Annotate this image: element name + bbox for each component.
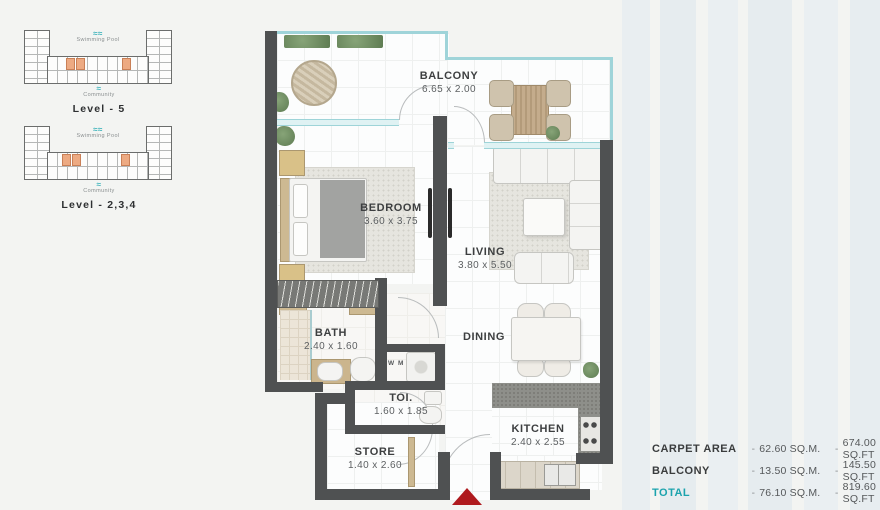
dining-label: DINING: [458, 331, 510, 344]
dining-table: [511, 317, 581, 361]
balcony-chair: [489, 114, 514, 141]
tv-unit: [448, 188, 452, 238]
highlighted-unit: [121, 154, 130, 166]
level-label: Level - 5: [16, 103, 182, 115]
separator: -: [747, 488, 759, 499]
wall-toilet-south: [345, 425, 445, 434]
pool-label: Swimming Pool: [76, 37, 119, 43]
toilet-label: TOI. 1.60 x 1.85: [370, 392, 432, 417]
kitchen-label: KITCHEN 2.40 x 2.55: [507, 423, 569, 448]
dining-name: DINING: [458, 331, 510, 344]
balcony-area-sqft: 145.50 SQ.FT: [843, 459, 876, 483]
balcony-plant: [546, 126, 560, 140]
wall-store-west: [315, 393, 327, 500]
separator: -: [747, 444, 759, 455]
community-label-block: ≈ Community: [16, 182, 182, 194]
living-dims: 3.80 x 5.50: [452, 260, 518, 272]
bath-sink: [317, 362, 343, 381]
kitchen-name: KITCHEN: [507, 423, 569, 436]
pool-label-block: ≈≈ Swimming Pool: [52, 31, 144, 43]
floorplan-page: ≈≈ Swimming Pool ≈ Community Level - 5 ≈…: [0, 0, 880, 510]
wall-bedroom-living-divider: [433, 116, 447, 306]
balcony-dims: 6.65 x 2.00: [404, 84, 494, 96]
community-label: Community: [83, 188, 114, 194]
balcony-railing-step: [445, 31, 448, 60]
kitchen-plant: [583, 362, 599, 378]
washing-machine: [406, 352, 436, 382]
living-window-glass: [484, 142, 602, 149]
wall-bath-south: [265, 382, 323, 392]
balcony-railing-top-left: [277, 31, 448, 34]
bath-name: BATH: [300, 327, 362, 340]
carpet-area-sqft: 674.00 SQ.FT: [843, 437, 876, 461]
balcony-railing-right: [610, 57, 613, 143]
highlighted-unit: [122, 58, 131, 70]
total-area-sqm: 76.10 SQ.M.: [759, 487, 831, 499]
bedroom-window-glass: [277, 119, 399, 126]
loveseat: [514, 252, 574, 284]
separator: -: [831, 466, 843, 477]
keyplan-level-234: ≈≈ Swimming Pool ≈ Community Level - 2,3…: [16, 126, 182, 211]
keyplan-building: ≈≈ Swimming Pool: [24, 30, 174, 84]
bedroom-plant: [275, 126, 295, 146]
total-area-sqft: 819.60 SQ.FT: [843, 481, 876, 505]
highlighted-unit: [72, 154, 81, 166]
bath-wc: [350, 357, 376, 382]
watermark-stripe: [850, 0, 880, 510]
area-row-balcony: BALCONY - 13.50 SQ.M. - 145.50 SQ.FT: [652, 460, 876, 482]
separator: -: [831, 444, 843, 455]
toilet-dims: 1.60 x 1.85: [370, 406, 432, 418]
watermark-stripe: [708, 0, 738, 510]
community-label: Community: [83, 92, 114, 98]
bedroom-dims: 3.60 x 3.75: [356, 216, 426, 228]
carpet-area-label: CARPET AREA: [652, 443, 747, 455]
wall-kitchen-se: [576, 453, 613, 464]
planter-box: [284, 35, 330, 48]
level-label: Level - 2,3,4: [16, 199, 182, 211]
store-label: STORE 1.40 x 2.60: [343, 446, 407, 471]
bath-label: BATH 2.40 x 1.60: [300, 327, 362, 352]
sofa-top-section: [493, 146, 605, 184]
bed-pillow: [293, 184, 308, 218]
wall-store-east: [438, 452, 450, 500]
living-window-glass-stub: [448, 142, 454, 149]
highlighted-unit: [76, 58, 85, 70]
living-label: LIVING 3.80 x 5.50: [452, 246, 518, 271]
balcony-railing-top-right: [445, 57, 613, 60]
coffee-table: [523, 198, 565, 236]
building-right-wing: [146, 126, 172, 180]
separator: -: [831, 488, 843, 499]
area-row-total: TOTAL - 76.10 SQ.M. - 819.60 SQ.FT: [652, 482, 876, 504]
balcony-table: [511, 85, 549, 135]
entry-arrow: [452, 488, 482, 505]
bedroom-name: BEDROOM: [356, 202, 426, 215]
wall-store-south: [315, 489, 450, 500]
toilet-name: TOI.: [370, 392, 432, 405]
planter-box: [337, 35, 383, 48]
building-center-bar: [47, 56, 149, 84]
balcony-area-label: BALCONY: [652, 465, 747, 477]
kitchen-dims: 2.40 x 2.55: [507, 437, 569, 449]
balcony-name: BALCONY: [404, 70, 494, 83]
keyplan-building: ≈≈ Swimming Pool: [24, 126, 174, 180]
area-table: CARPET AREA - 62.60 SQ.M. - 674.00 SQ.FT…: [652, 438, 876, 504]
community-label-block: ≈ Community: [16, 86, 182, 98]
stove: [580, 416, 601, 452]
balcony-chair: [546, 80, 571, 107]
pool-label-block: ≈≈ Swimming Pool: [52, 127, 144, 139]
wm-label: W M: [388, 360, 404, 367]
watermark-stripe: [622, 0, 650, 510]
pool-label: Swimming Pool: [76, 133, 119, 139]
watermark-stripe: [660, 0, 696, 510]
building-right-wing: [146, 30, 172, 84]
balcony-area-sqm: 13.50 SQ.M.: [759, 465, 831, 477]
bed-pillow: [293, 222, 308, 256]
wardrobe: [277, 280, 379, 308]
carpet-area-sqm: 62.60 SQ.M.: [759, 443, 831, 455]
balcony-label: BALCONY 6.65 x 2.00: [404, 70, 494, 95]
wall-right-outer: [600, 140, 613, 464]
wall-kitchen-south: [490, 489, 590, 500]
area-row-carpet: CARPET AREA - 62.60 SQ.M. - 674.00 SQ.FT: [652, 438, 876, 460]
store-name: STORE: [343, 446, 407, 459]
hanging-chair: [291, 60, 337, 106]
nightstand: [279, 150, 305, 176]
keyplan-level-5: ≈≈ Swimming Pool ≈ Community Level - 5: [16, 30, 182, 115]
living-name: LIVING: [452, 246, 518, 259]
total-area-label: TOTAL: [652, 487, 747, 499]
store-door-leaf: [408, 437, 415, 487]
separator: -: [747, 466, 759, 477]
wall-toilet-north: [345, 381, 445, 390]
highlighted-unit: [62, 154, 71, 166]
store-dims: 1.40 x 2.60: [343, 460, 407, 472]
watermark-stripe: [804, 0, 838, 510]
bedroom-label: BEDROOM 3.60 x 3.75: [356, 202, 426, 227]
wall-left-outer: [265, 31, 277, 390]
watermark-stripe: [748, 0, 792, 510]
kitchen-sink: [544, 464, 576, 486]
highlighted-unit: [66, 58, 75, 70]
bath-dims: 2.40 x 1.60: [300, 341, 362, 353]
tv-unit: [428, 188, 432, 238]
